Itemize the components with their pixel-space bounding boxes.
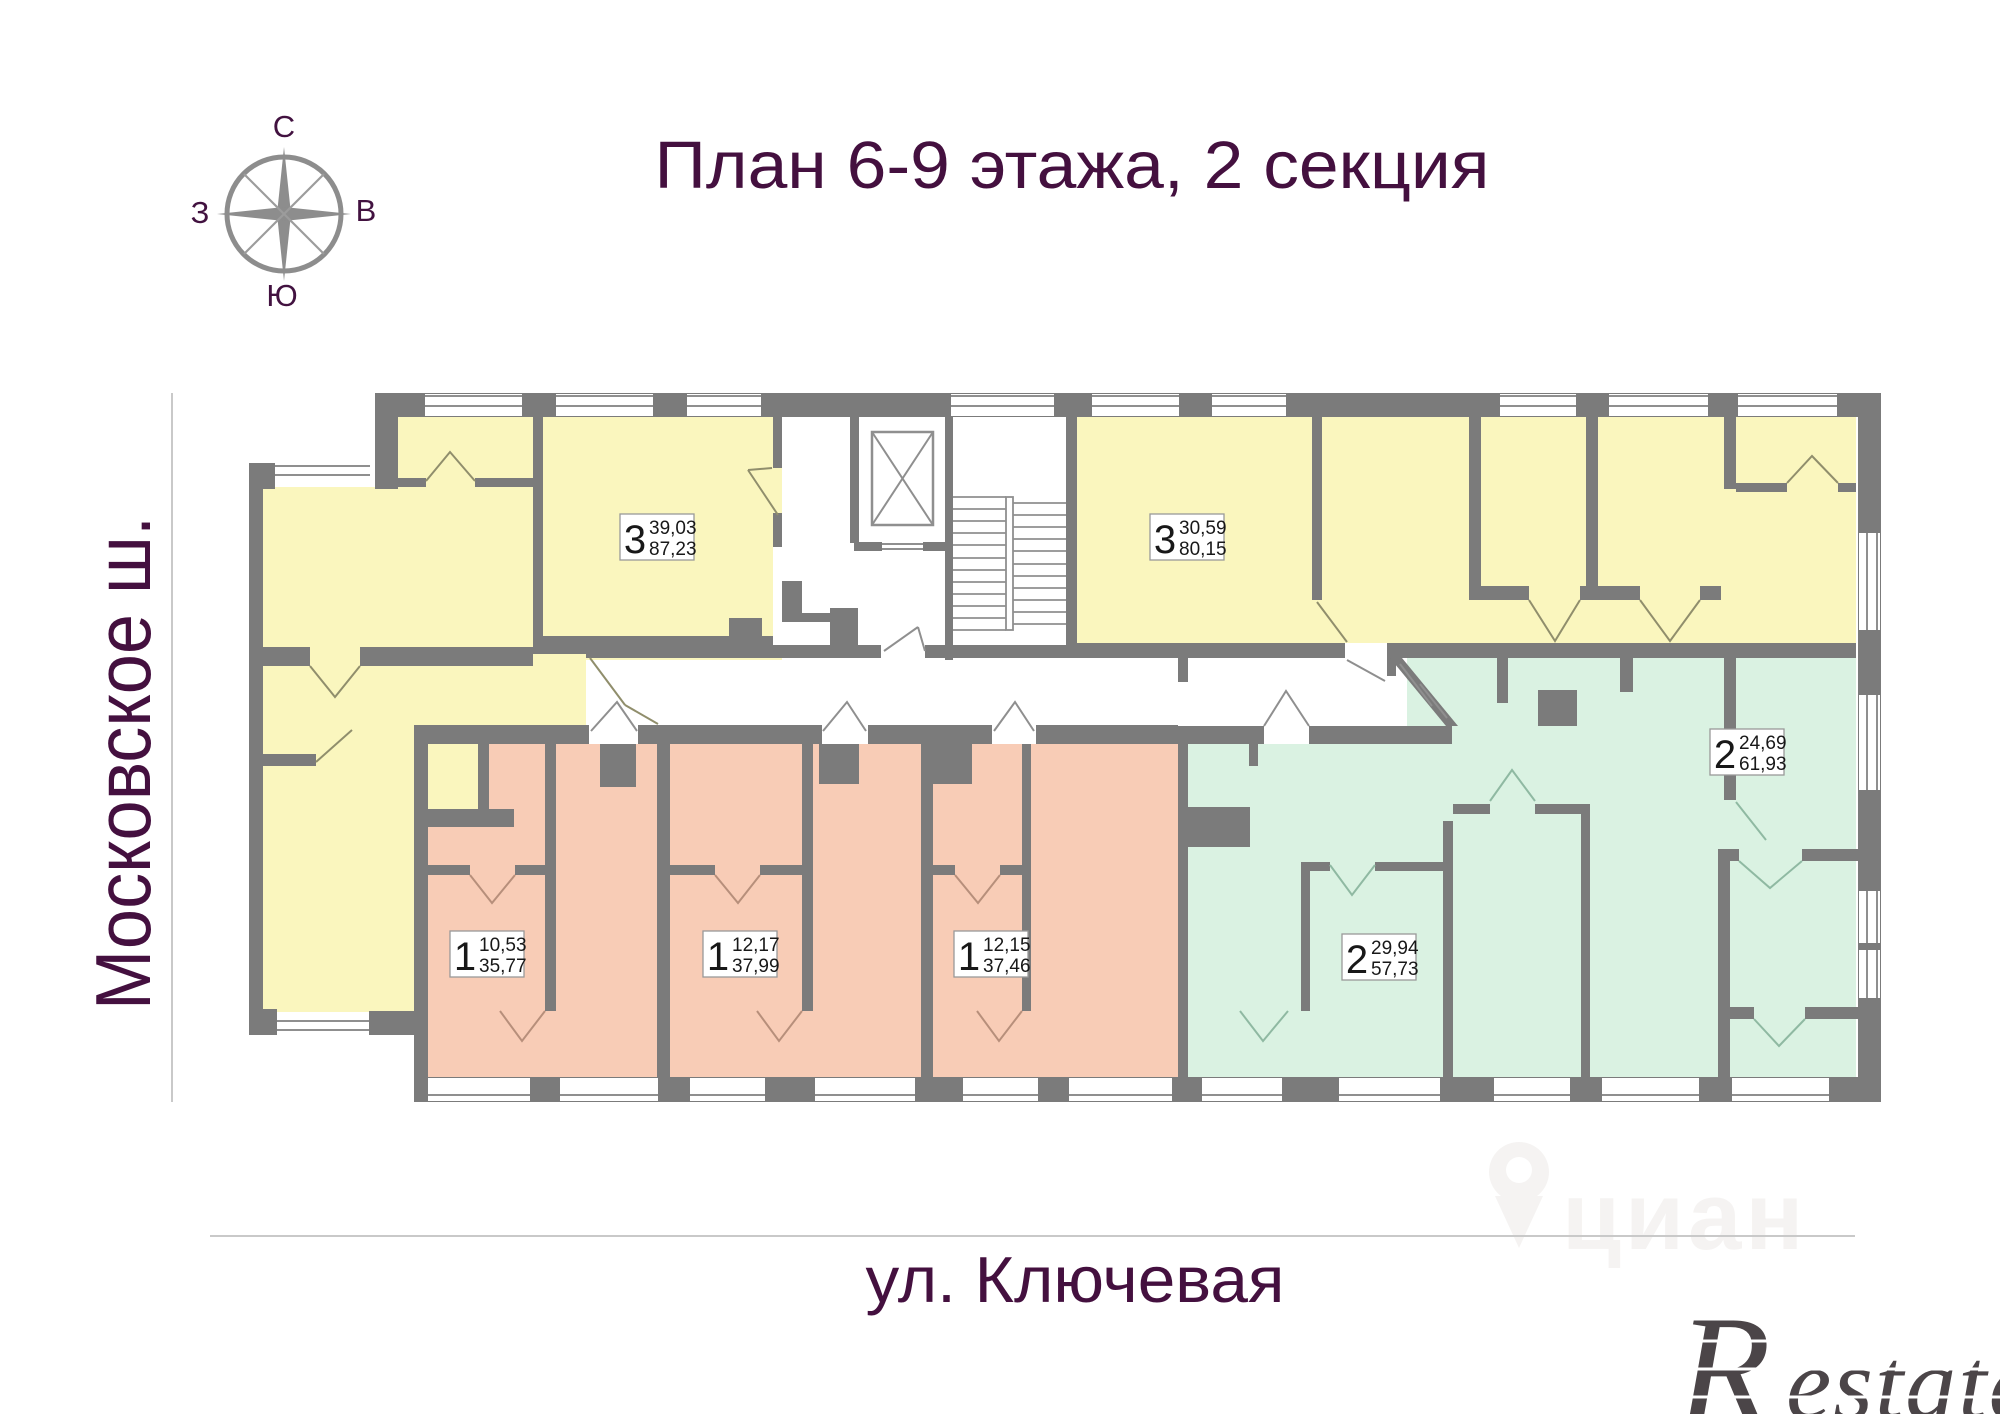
svg-text:39,03: 39,03 [649,518,697,539]
svg-text:3: 3 [1154,518,1176,562]
svg-text:Ю: Ю [266,278,297,313]
svg-text:R: R [1677,1285,1771,1414]
svg-text:Московское ш.: Московское ш. [79,516,167,1010]
svg-text:24,69: 24,69 [1739,733,1787,754]
svg-text:35,77: 35,77 [479,956,527,977]
svg-text:1: 1 [707,935,729,979]
svg-text:1: 1 [958,935,980,979]
svg-text:План 6-9 этажа, 2 секция: План 6-9 этажа, 2 секция [655,128,1490,203]
svg-text:ул. Ключевая: ул. Ключевая [866,1243,1285,1316]
svg-text:57,73: 57,73 [1371,959,1419,980]
svg-text:10,53: 10,53 [479,935,527,956]
svg-text:30,59: 30,59 [1179,518,1227,539]
svg-text:80,15: 80,15 [1179,539,1227,560]
svg-text:12,17: 12,17 [732,935,780,956]
svg-text:37,46: 37,46 [983,956,1031,977]
svg-text:29,94: 29,94 [1371,938,1419,959]
svg-text:В: В [356,193,377,228]
svg-text:1: 1 [454,935,476,979]
svg-text:87,23: 87,23 [649,539,697,560]
svg-text:37,99: 37,99 [732,956,780,977]
svg-text:2: 2 [1714,733,1736,777]
svg-text:З: З [191,195,210,230]
svg-text:12,15: 12,15 [983,935,1031,956]
svg-text:2: 2 [1346,938,1368,982]
svg-text:3: 3 [624,518,646,562]
svg-text:С: С [273,109,295,144]
svg-text:61,93: 61,93 [1739,754,1787,775]
svg-text:циан: циан [1562,1163,1807,1270]
